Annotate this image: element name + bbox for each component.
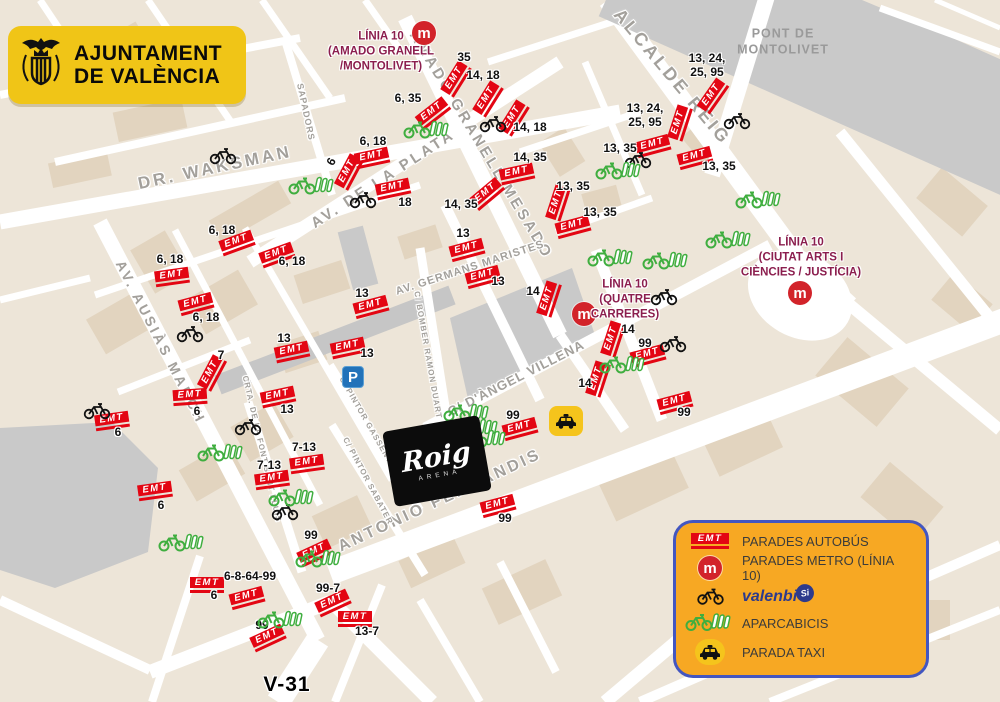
emt-stop: EMT (667, 104, 693, 141)
emt-stop: EMT (697, 77, 730, 114)
valenbisi-icon (480, 115, 507, 138)
valenbisi-icon (660, 335, 687, 358)
legend-item-valenbisi: valenbiSi (688, 587, 914, 608)
parking-icon: P (342, 366, 364, 388)
aparcabicis-icon (735, 190, 785, 215)
valenbisi-bike-icon (688, 587, 732, 608)
ajuntament-logo-line2: DE VALÈNCIA (74, 65, 222, 88)
valenbisi-icon (177, 325, 204, 348)
aparcabicis-icon (587, 248, 637, 273)
route-number-label: 99-7 (316, 582, 340, 596)
legend-item-metro: m PARADES METRO (LÍNIA 10) (688, 553, 914, 583)
route-number-label: 6 (158, 499, 165, 513)
aparcabicis-icon (158, 533, 208, 558)
route-number-label: 99 (638, 337, 651, 351)
route-number-label: 14, 18 (466, 69, 499, 83)
route-number-label: 99 (304, 529, 317, 543)
route-number-label: 14 (621, 323, 634, 337)
valenbisi-icon (651, 288, 678, 311)
route-number-label: 13 (456, 227, 469, 241)
aparcabicis-icon (295, 549, 345, 574)
route-number-label: 13-7 (355, 625, 379, 639)
route-number-label: 13, 35 (702, 160, 735, 174)
aparcabicis-icon (197, 443, 247, 468)
valenbisi-icon (724, 112, 751, 135)
route-number-label: 14, 35 (444, 198, 477, 212)
route-number-label: 6-8-64-99 (224, 570, 276, 584)
route-number-label: 6, 18 (360, 135, 387, 149)
aparcabicis-icon (599, 355, 649, 380)
map-legend: EMT PARADES AUTOBÚS m PARADES METRO (LÍN… (673, 520, 929, 678)
ajuntament-logo: AJUNTAMENT DE VALÈNCIA (8, 26, 246, 104)
metro-line-label: LÍNIA 10 (QUATRE CARRERES) (591, 278, 659, 323)
aparcabicis-icon (257, 610, 307, 635)
route-number-label: 6, 18 (193, 311, 220, 325)
route-number-label: 6, 18 (157, 253, 184, 267)
metro-icon: m (688, 556, 732, 580)
route-number-label: 13 (360, 347, 373, 361)
route-number-label: 14, 35 (513, 151, 546, 165)
route-number-label: 14 (578, 377, 591, 391)
route-number-label: 7-13 (257, 459, 281, 473)
v31-road-label: V-31 (263, 673, 310, 697)
valencia-coat-of-arms-icon (18, 35, 64, 96)
route-number-label: 6, 18 (209, 224, 236, 238)
route-number-label: 6 (115, 426, 122, 440)
route-number-label: 14, 18 (513, 121, 546, 135)
aparcabicis-icon (642, 251, 692, 276)
route-number-label: 7-13 (292, 441, 316, 455)
roig-arena-title: Roig (401, 437, 471, 476)
route-number-label: 18 (398, 196, 411, 210)
route-number-label: 13, 35 (583, 206, 616, 220)
legend-item-bus: EMT PARADES AUTOBÚS (688, 533, 914, 549)
ajuntament-logo-text: AJUNTAMENT DE VALÈNCIA (74, 42, 222, 88)
route-number-label: 6, 18 (279, 255, 306, 269)
route-number-label: 13 (491, 275, 504, 289)
emt-stop: EMT (137, 481, 173, 502)
route-number-label: 7 (218, 349, 225, 363)
emt-stop: EMT (154, 267, 190, 288)
metro-icon: m (788, 281, 812, 305)
legend-item-aparcabicis: APARCABICIS (688, 612, 914, 635)
valenbisi-icon (210, 147, 237, 170)
ajuntament-logo-line1: AJUNTAMENT (74, 42, 222, 65)
legend-label-bus: PARADES AUTOBÚS (742, 534, 869, 549)
route-number-label: 6, 35 (395, 92, 422, 106)
route-number-label: 6 (211, 589, 218, 603)
aparcabicis-icon (288, 176, 338, 201)
emt-stop: EMT (472, 80, 504, 117)
aparcabicis-icon (705, 230, 755, 255)
route-number-label: 99 (506, 409, 519, 423)
route-number-label: 13, 24, 25, 95 (689, 52, 726, 80)
emt-stop: EMT (229, 586, 266, 610)
legend-label-taxi: PARADA TAXI (742, 645, 825, 660)
pont-de-montolivet-label: PONT DE MONTOLIVET (737, 26, 829, 57)
emt-stop: EMT (536, 280, 562, 317)
valenbisi-icon (235, 418, 262, 441)
emt-stop: EMT (289, 454, 325, 475)
route-number-label: 99 (498, 512, 511, 526)
route-number-label: 6 (194, 405, 201, 419)
emt-stop: EMT (172, 388, 207, 406)
route-number-label: 13, 24, 25, 95 (627, 102, 664, 130)
emt-stop: EMT (354, 147, 391, 170)
valenbisi-wordmark: valenbi (742, 588, 797, 605)
route-number-label: 13 (355, 287, 368, 301)
aparcabicis-icon (403, 120, 453, 145)
street-name-label: C/ BOMBER RAMON DUART (412, 290, 443, 419)
legend-label-metro: PARADES METRO (LÍNIA 10) (742, 553, 914, 583)
route-number-label: 6 (324, 156, 339, 168)
metro-line-label: LÍNIA 10 (CIUTAT ARTS I CIÈNCIES / JUSTÍ… (741, 236, 861, 281)
taxi-stand-icon (549, 406, 583, 436)
emt-stop: EMT (190, 577, 224, 593)
route-number-label: 35 (457, 51, 470, 65)
aparcabicis-icon (268, 488, 318, 513)
valenbisi-si-badge: Si (794, 582, 815, 603)
route-number-label: 13 (277, 332, 290, 346)
legend-label-aparcabicis: APARCABICIS (742, 616, 828, 631)
route-number-label: 14 (526, 285, 539, 299)
taxi-icon (688, 639, 732, 665)
transit-map: DR. WAKSMANAV. DE LA PLATAAV. AUSIÀS MAR… (0, 0, 1000, 702)
route-number-label: 13 (280, 403, 293, 417)
metro-line-label: LÍNIA 10 (AMADO GRANELL /MONTOLIVET) (328, 30, 434, 75)
route-number-label: 13, 35 (556, 180, 589, 194)
aparcabicis-icon (595, 161, 645, 186)
emt-stop: EMT (499, 163, 536, 186)
route-number-label: 99 (677, 406, 690, 420)
emt-logo-icon: EMT (688, 533, 732, 549)
valenbisi-logo: valenbiSi (742, 588, 815, 607)
valenbisi-icon (84, 402, 111, 425)
street-name-label: SAPADORS (295, 82, 317, 141)
valenbisi-icon (350, 191, 377, 214)
legend-item-taxi: PARADA TAXI (688, 639, 914, 665)
aparcabicis-icon (688, 612, 732, 635)
